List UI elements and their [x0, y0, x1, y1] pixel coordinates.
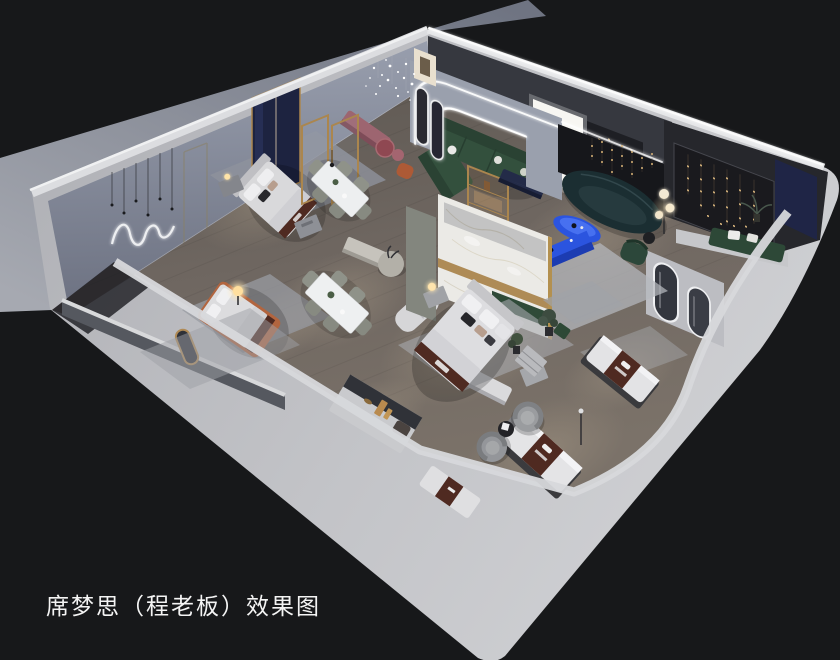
- small-round-table: [498, 421, 514, 437]
- render-caption: 席梦思（程老板）效果图: [46, 587, 321, 621]
- pink-round-table: [376, 139, 394, 157]
- pendant-shade: [330, 163, 334, 167]
- black-side-table: [643, 232, 655, 244]
- showroom-render: [0, 0, 840, 660]
- pink-side-table: [392, 149, 404, 161]
- render-canvas: 席梦思（程老板）效果图: [0, 0, 840, 660]
